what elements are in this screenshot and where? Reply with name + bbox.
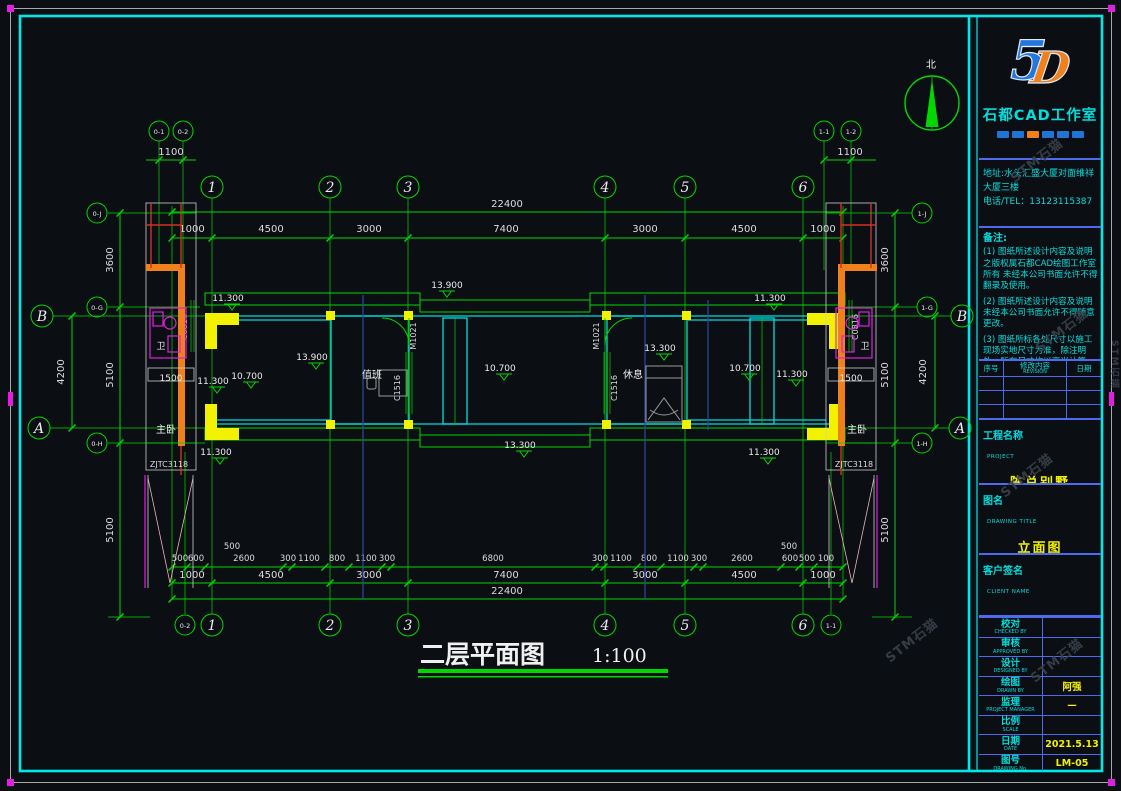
dim-text: 4200 (918, 359, 929, 384)
door-tag: M1021 (592, 322, 601, 349)
sub-axis-bubble: 1-G (921, 304, 933, 312)
rev-cell (979, 377, 1004, 391)
studio-logo-section: 5D 石都CAD工作室 (979, 18, 1101, 158)
row-value-number: LM-05 (1043, 754, 1101, 772)
dim-text: 300 (280, 554, 296, 564)
axis-bubble-2: 2 (325, 618, 335, 634)
client-section: 客户签名 CLIENT NAME (979, 553, 1101, 615)
dim-text: 300 (379, 554, 395, 564)
phone: 电话/TEL：13123115387 (983, 196, 1097, 210)
window-tag: C1516 (393, 375, 402, 401)
dim-text: 4500 (731, 570, 756, 581)
sub-axis-bubble: 1-J (918, 210, 927, 218)
plan-title-text: 二层平面图 (420, 640, 545, 669)
axis-bubble-4: 4 (600, 180, 610, 196)
elevation-value: 13.900 (431, 281, 463, 291)
rev-col-no: 序号 (979, 361, 1004, 377)
axis-bubble-A: A (32, 421, 44, 437)
drawing-title-label: 图名 (983, 496, 1003, 507)
row-value-drawn: 阿强 (1043, 676, 1101, 696)
dim-text: 5100 (880, 517, 891, 542)
elevation-value: 11.300 (748, 448, 780, 458)
dim-right: 3600 5100 5100 4200 (880, 210, 939, 621)
dim-text: 7400 (493, 224, 518, 235)
sub-axis-bubble: 1-2 (846, 128, 857, 136)
dim-text: 1100 (667, 554, 689, 564)
dim-text: 3600 (105, 247, 116, 272)
rev-col-content-cn: 修改内容 (1020, 362, 1050, 370)
axis-bubble-4: 4 (600, 618, 610, 634)
row-value-scale (1043, 715, 1101, 735)
dim-text: 800 (641, 554, 657, 564)
dim-text: 600 (782, 554, 798, 564)
room-label-duty: 值班 (362, 368, 382, 381)
plan-title-scale: 1:100 (592, 645, 647, 667)
logo-glyph-d: D (1028, 43, 1073, 94)
rev-cell (1067, 377, 1101, 391)
stair-left (443, 318, 467, 424)
axis-bubble-1: 1 (208, 618, 217, 634)
row-value-approved (1043, 637, 1101, 657)
row-label-drawn: 绘图DRAWN BY (979, 676, 1043, 696)
rev-cell (1067, 405, 1101, 418)
elevation-value: 11.300 (212, 294, 244, 304)
notes-section: 备注: (1) 图纸所述设计内容及说明之版权属石都CAD绘图工作室所有 未经本公… (979, 226, 1101, 359)
elevation-value: 11.300 (776, 370, 808, 380)
elevation-value: 10.700 (484, 364, 516, 374)
room-label-master: 主卧 (156, 423, 176, 436)
row-label-supervisor: 监理PROJECT MANAGER (979, 695, 1043, 715)
dim-text: 100 (818, 554, 834, 564)
rev-cell (1004, 405, 1067, 418)
dim-text: 500 (781, 542, 797, 552)
note-item: (2) 图纸所述设计内容及说明未经本公司书面允许不得随意更改。 (983, 297, 1098, 331)
notes-title: 备注: (983, 232, 1098, 245)
rev-col-date: 日期 (1067, 361, 1101, 377)
rev-cell (979, 405, 1004, 418)
dim-text: 1100 (355, 554, 377, 564)
drawing-title-section: 图名 DRAWING TITLE 立面图 (979, 483, 1101, 553)
axis-bubble-A: A (953, 421, 965, 437)
room-label-rest: 休息 (623, 368, 643, 381)
elevation-markers: 13.900 13.900 10.700 10.700 13.300 13.30… (197, 281, 808, 464)
row-value-checked (1043, 617, 1101, 637)
door-tag: M1021 (409, 322, 418, 349)
studio-name: 石都CAD工作室 (979, 104, 1101, 125)
rev-cell (1004, 377, 1067, 391)
title-block: 5D 石都CAD工作室 地址:水头汇盛大厦对面维祥 大厦三楼 电话/TEL：13… (979, 18, 1101, 770)
dim-text: 500 (799, 554, 815, 564)
elevation-value: 13.300 (504, 441, 536, 451)
note-item: (1) 图纸所述设计内容及说明之版权属石都CAD绘图工作室所有 未经本公司书面允… (983, 247, 1098, 292)
axis-bubble-1: 1 (208, 180, 217, 196)
doors-windows: M1021 M1021 C1516 C1516 C0816 C0816 (180, 300, 860, 414)
sub-axis-bubble: 0-1 (154, 128, 165, 136)
dim-text: 6800 (482, 554, 504, 564)
axis-bubble-2: 2 (325, 180, 335, 196)
north-arrow: 北 (905, 59, 959, 130)
project-section: 工程名称 PROJECT 陈总别墅 (979, 418, 1101, 483)
studio-logo-icon: 5D (979, 28, 1101, 100)
dim-text: 1500 (160, 374, 183, 384)
signature-rows: 校对CHECKED BY 审核APPROVED BY 设计DESIGNED BY… (979, 615, 1101, 771)
dim-text: 500 (224, 542, 240, 552)
axis-bubble-3: 3 (404, 180, 413, 196)
dim-text: 5100 (880, 362, 891, 387)
sub-axis-bubble: 1-1 (826, 622, 837, 630)
note-item: (3) 图纸所标各处尺寸以施工现场实地尺寸为准，除注明外，所有尺寸均以毫米计算。 (983, 335, 1098, 359)
dim-text: 3000 (632, 224, 657, 235)
dim-text: 5100 (105, 517, 116, 542)
dim-text: 2600 (233, 554, 255, 564)
dim-text: 4200 (56, 359, 67, 384)
component-code: ZJTC3118 (150, 460, 188, 469)
drawing-title-value: 立面图 (983, 537, 1097, 553)
address-line1: 地址:水头汇盛大厦对面维祥 (983, 168, 1097, 182)
project-label-en: PROJECT (987, 454, 1014, 460)
dim-text: 1000 (810, 224, 835, 235)
row-label-approved: 审核APPROVED BY (979, 637, 1043, 657)
elevation-value: 10.700 (231, 372, 263, 382)
row-value-designed (1043, 656, 1101, 676)
row-value-date: 2021.5.13 (1043, 734, 1101, 754)
room-label-master: 主卧 (847, 423, 867, 436)
dim-text: 22400 (491, 199, 523, 210)
dim-text: 1000 (179, 570, 204, 581)
axis-bubble-5: 5 (681, 180, 690, 196)
axis-bubble-B: B (956, 309, 967, 325)
bed (646, 366, 682, 422)
window-tag: C1516 (610, 375, 619, 401)
row-label-designed: 设计DESIGNED BY (979, 656, 1043, 676)
rev-col-content: 修改内容REVISION (1004, 361, 1067, 377)
sub-axis-bubble: 0-H (91, 440, 102, 448)
north-label: 北 (926, 59, 936, 71)
row-label-scale: 比例SCALE (979, 715, 1043, 735)
dim-text: 800 (329, 554, 345, 564)
dim-text: 1000 (179, 224, 204, 235)
frame-registration-marks (7, 5, 1115, 786)
revision-table: 序号 修改内容REVISION 日期 (979, 359, 1101, 418)
floor-plan-drawing: 北 1 2 3 4 (0, 0, 1121, 791)
address-section: 地址:水头汇盛大厦对面维祥 大厦三楼 电话/TEL：13123115387 (979, 158, 1101, 226)
dim-text: 3000 (356, 224, 381, 235)
plan-title: 二层平面图 1:100 (418, 640, 668, 678)
rev-cell (1067, 391, 1101, 405)
sub-axis-bubble: 0-2 (178, 128, 189, 136)
rev-cell (979, 391, 1004, 405)
dim-bottom: 500 600 2600 300 1100 800 1100 300 6800 … (169, 542, 847, 603)
dim-text: 22400 (491, 586, 523, 597)
dim-text: 4500 (258, 570, 283, 581)
axis-bubble-5: 5 (681, 618, 690, 634)
row-value-supervisor: — (1043, 695, 1101, 715)
dim-text: 4500 (731, 224, 756, 235)
axis-bubbles-top: 1 2 3 4 5 6 0-1 0-2 1-1 1-2 (149, 121, 861, 198)
dim-text: 4500 (258, 224, 283, 235)
row-label-checked: 校对CHECKED BY (979, 617, 1043, 637)
sub-axis-bubble: 0-G (91, 304, 103, 312)
wing-right (826, 203, 877, 588)
axis-bubble-3: 3 (404, 618, 413, 634)
dim-text: 600 (188, 554, 204, 564)
dim-left: 3600 5100 5100 4200 (56, 210, 124, 621)
room-label-wc: 卫 (860, 342, 869, 352)
row-label-date: 日期DATE (979, 734, 1043, 754)
elevation-value: 11.300 (754, 294, 786, 304)
dim-text: 1100 (837, 147, 862, 158)
axis-bubble-B: B (36, 309, 47, 325)
elevation-value: 13.300 (644, 344, 676, 354)
dim-text: 1100 (298, 554, 320, 564)
sub-axis-bubble: 1-H (916, 440, 927, 448)
dim-text: 3600 (880, 247, 891, 272)
elevation-value: 10.700 (729, 364, 761, 374)
dim-text: 5100 (105, 362, 116, 387)
dim-text: 2600 (731, 554, 753, 564)
rev-col-content-en: REVISION (1023, 370, 1047, 375)
rev-cell (1004, 391, 1067, 405)
address-line2: 大厦三楼 (983, 182, 1097, 196)
project-label: 工程名称 (983, 431, 1023, 442)
row-label-number: 图号DRAWING No. (979, 754, 1043, 772)
dim-text: 300 (592, 554, 608, 564)
drawing-title-label-en: DRAWING TITLE (987, 519, 1037, 525)
client-label-en: CLIENT NAME (987, 589, 1030, 595)
elevation-value: 13.900 (296, 353, 328, 363)
axis-bubble-6: 6 (799, 618, 808, 634)
dim-text: 7400 (493, 570, 518, 581)
axis-bubbles-bottom: 1 2 3 4 5 6 0-2 1-1 (175, 614, 841, 636)
dim-text: 1500 (840, 374, 863, 384)
room-label-wc: 卫 (156, 342, 165, 352)
dim-text: 1100 (158, 147, 183, 158)
dim-top: 1100 1100 22400 1000 4500 3000 7400 3000… (146, 147, 876, 242)
axis-bubble-6: 6 (799, 180, 808, 196)
wing-left (145, 203, 196, 588)
dim-text: 1000 (810, 570, 835, 581)
sub-axis-bubble: 0-2 (180, 622, 191, 630)
client-label: 客户签名 (983, 566, 1023, 577)
dim-text: 3000 (356, 570, 381, 581)
dim-text: 300 (691, 554, 707, 564)
dim-text: 1100 (610, 554, 632, 564)
sub-axis-bubble: 1-1 (819, 128, 830, 136)
cad-sheet: 北 1 2 3 4 (0, 0, 1121, 791)
elevation-value: 11.300 (197, 377, 229, 387)
project-name: 陈总别墅 (983, 472, 1097, 483)
component-code: ZJTC3118 (835, 460, 873, 469)
sub-axis-bubble: 0-J (93, 210, 102, 218)
elevation-value: 11.300 (200, 448, 232, 458)
contact-chips (979, 131, 1101, 138)
